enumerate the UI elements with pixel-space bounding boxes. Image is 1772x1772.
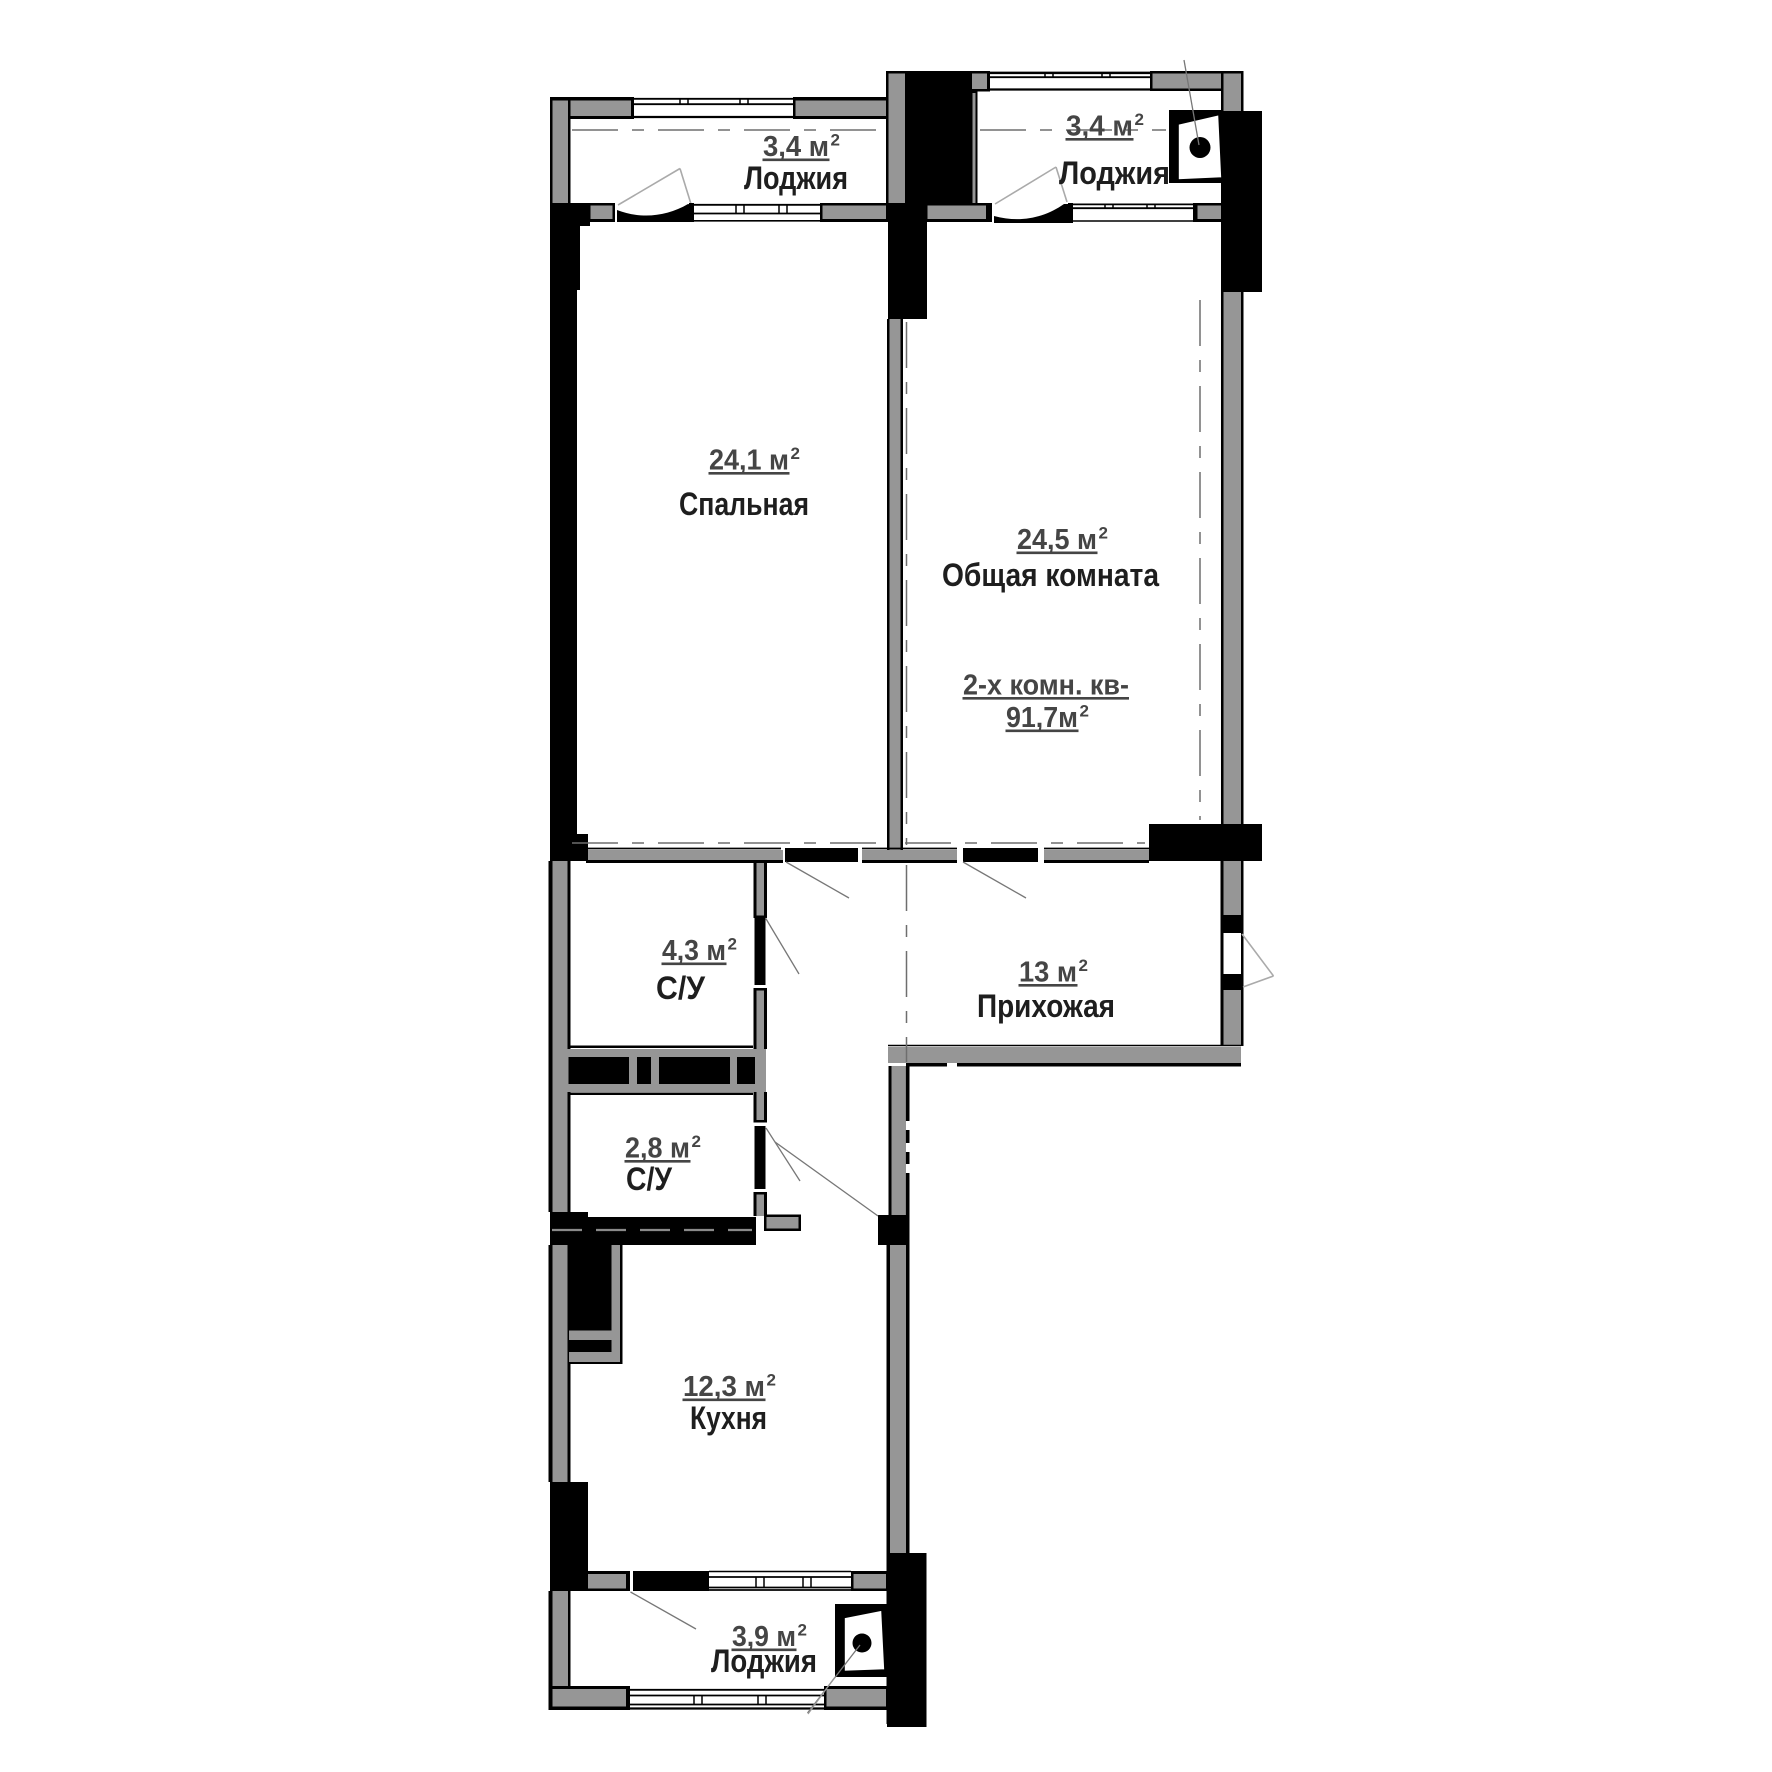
svg-text:2: 2 [798,1621,807,1640]
svg-text:91,7м: 91,7м [1006,702,1078,734]
svg-text:С/У: С/У [626,1161,673,1197]
svg-text:2-х комн. кв-: 2-х комн. кв- [963,670,1129,702]
svg-text:3,4 м: 3,4 м [1066,111,1133,143]
svg-text:2: 2 [1135,110,1144,129]
svg-text:2: 2 [1099,524,1108,543]
svg-text:2: 2 [692,1132,701,1151]
svg-text:Прихожая: Прихожая [977,988,1115,1024]
svg-text:Кухня: Кухня [690,1400,767,1436]
svg-text:2,8 м: 2,8 м [625,1133,690,1165]
svg-text:2: 2 [831,131,840,150]
svg-text:12,3 м: 12,3 м [683,1371,765,1403]
svg-text:4,3 м: 4,3 м [662,935,726,967]
svg-text:2: 2 [1079,956,1088,975]
svg-text:2: 2 [791,444,800,463]
svg-text:24,1 м: 24,1 м [709,445,789,477]
svg-text:Лоджия: Лоджия [711,1643,817,1679]
svg-text:Общая комната: Общая комната [942,557,1159,593]
svg-text:2: 2 [767,1371,776,1390]
svg-text:13 м: 13 м [1019,957,1077,989]
svg-text:С/У: С/У [656,970,706,1006]
svg-text:Лоджия: Лоджия [744,160,848,196]
svg-text:Спальная: Спальная [679,486,809,522]
svg-text:Лоджия: Лоджия [1059,155,1170,191]
svg-text:2: 2 [1080,702,1089,721]
svg-text:24,5 м: 24,5 м [1017,524,1097,556]
svg-text:3,4 м: 3,4 м [763,131,829,163]
svg-text:2: 2 [728,935,737,954]
